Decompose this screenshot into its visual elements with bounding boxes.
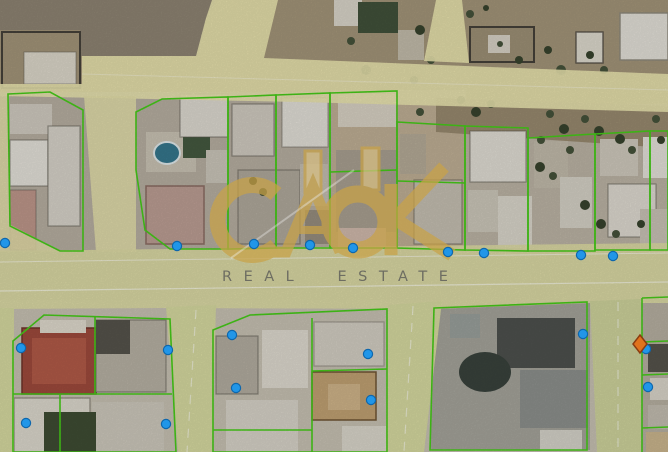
map-pin[interactable] <box>0 238 9 247</box>
map-pin[interactable] <box>161 419 170 428</box>
map-pin[interactable] <box>163 345 172 354</box>
brand-tagline: REAL ESTATE <box>222 269 459 285</box>
map-pin[interactable] <box>366 395 375 404</box>
map-pin[interactable] <box>227 330 236 339</box>
map-pin[interactable] <box>578 329 587 338</box>
satellite-map-canvas: REAL ESTATE <box>0 0 668 452</box>
map-pin[interactable] <box>576 250 585 259</box>
map-pin[interactable] <box>443 247 452 256</box>
map-pin[interactable] <box>231 383 240 392</box>
satellite-map[interactable]: REAL ESTATE <box>0 0 668 452</box>
map-pin[interactable] <box>172 241 181 250</box>
map-pin[interactable] <box>21 418 30 427</box>
map-pin[interactable] <box>479 248 488 257</box>
map-pin[interactable] <box>305 240 314 249</box>
map-pin[interactable] <box>348 243 357 252</box>
map-pin[interactable] <box>363 349 372 358</box>
map-pin[interactable] <box>643 382 652 391</box>
logo-ascender-bar <box>362 148 379 190</box>
map-pin[interactable] <box>16 343 25 352</box>
map-pin[interactable] <box>249 239 258 248</box>
map-pin[interactable] <box>608 251 617 260</box>
